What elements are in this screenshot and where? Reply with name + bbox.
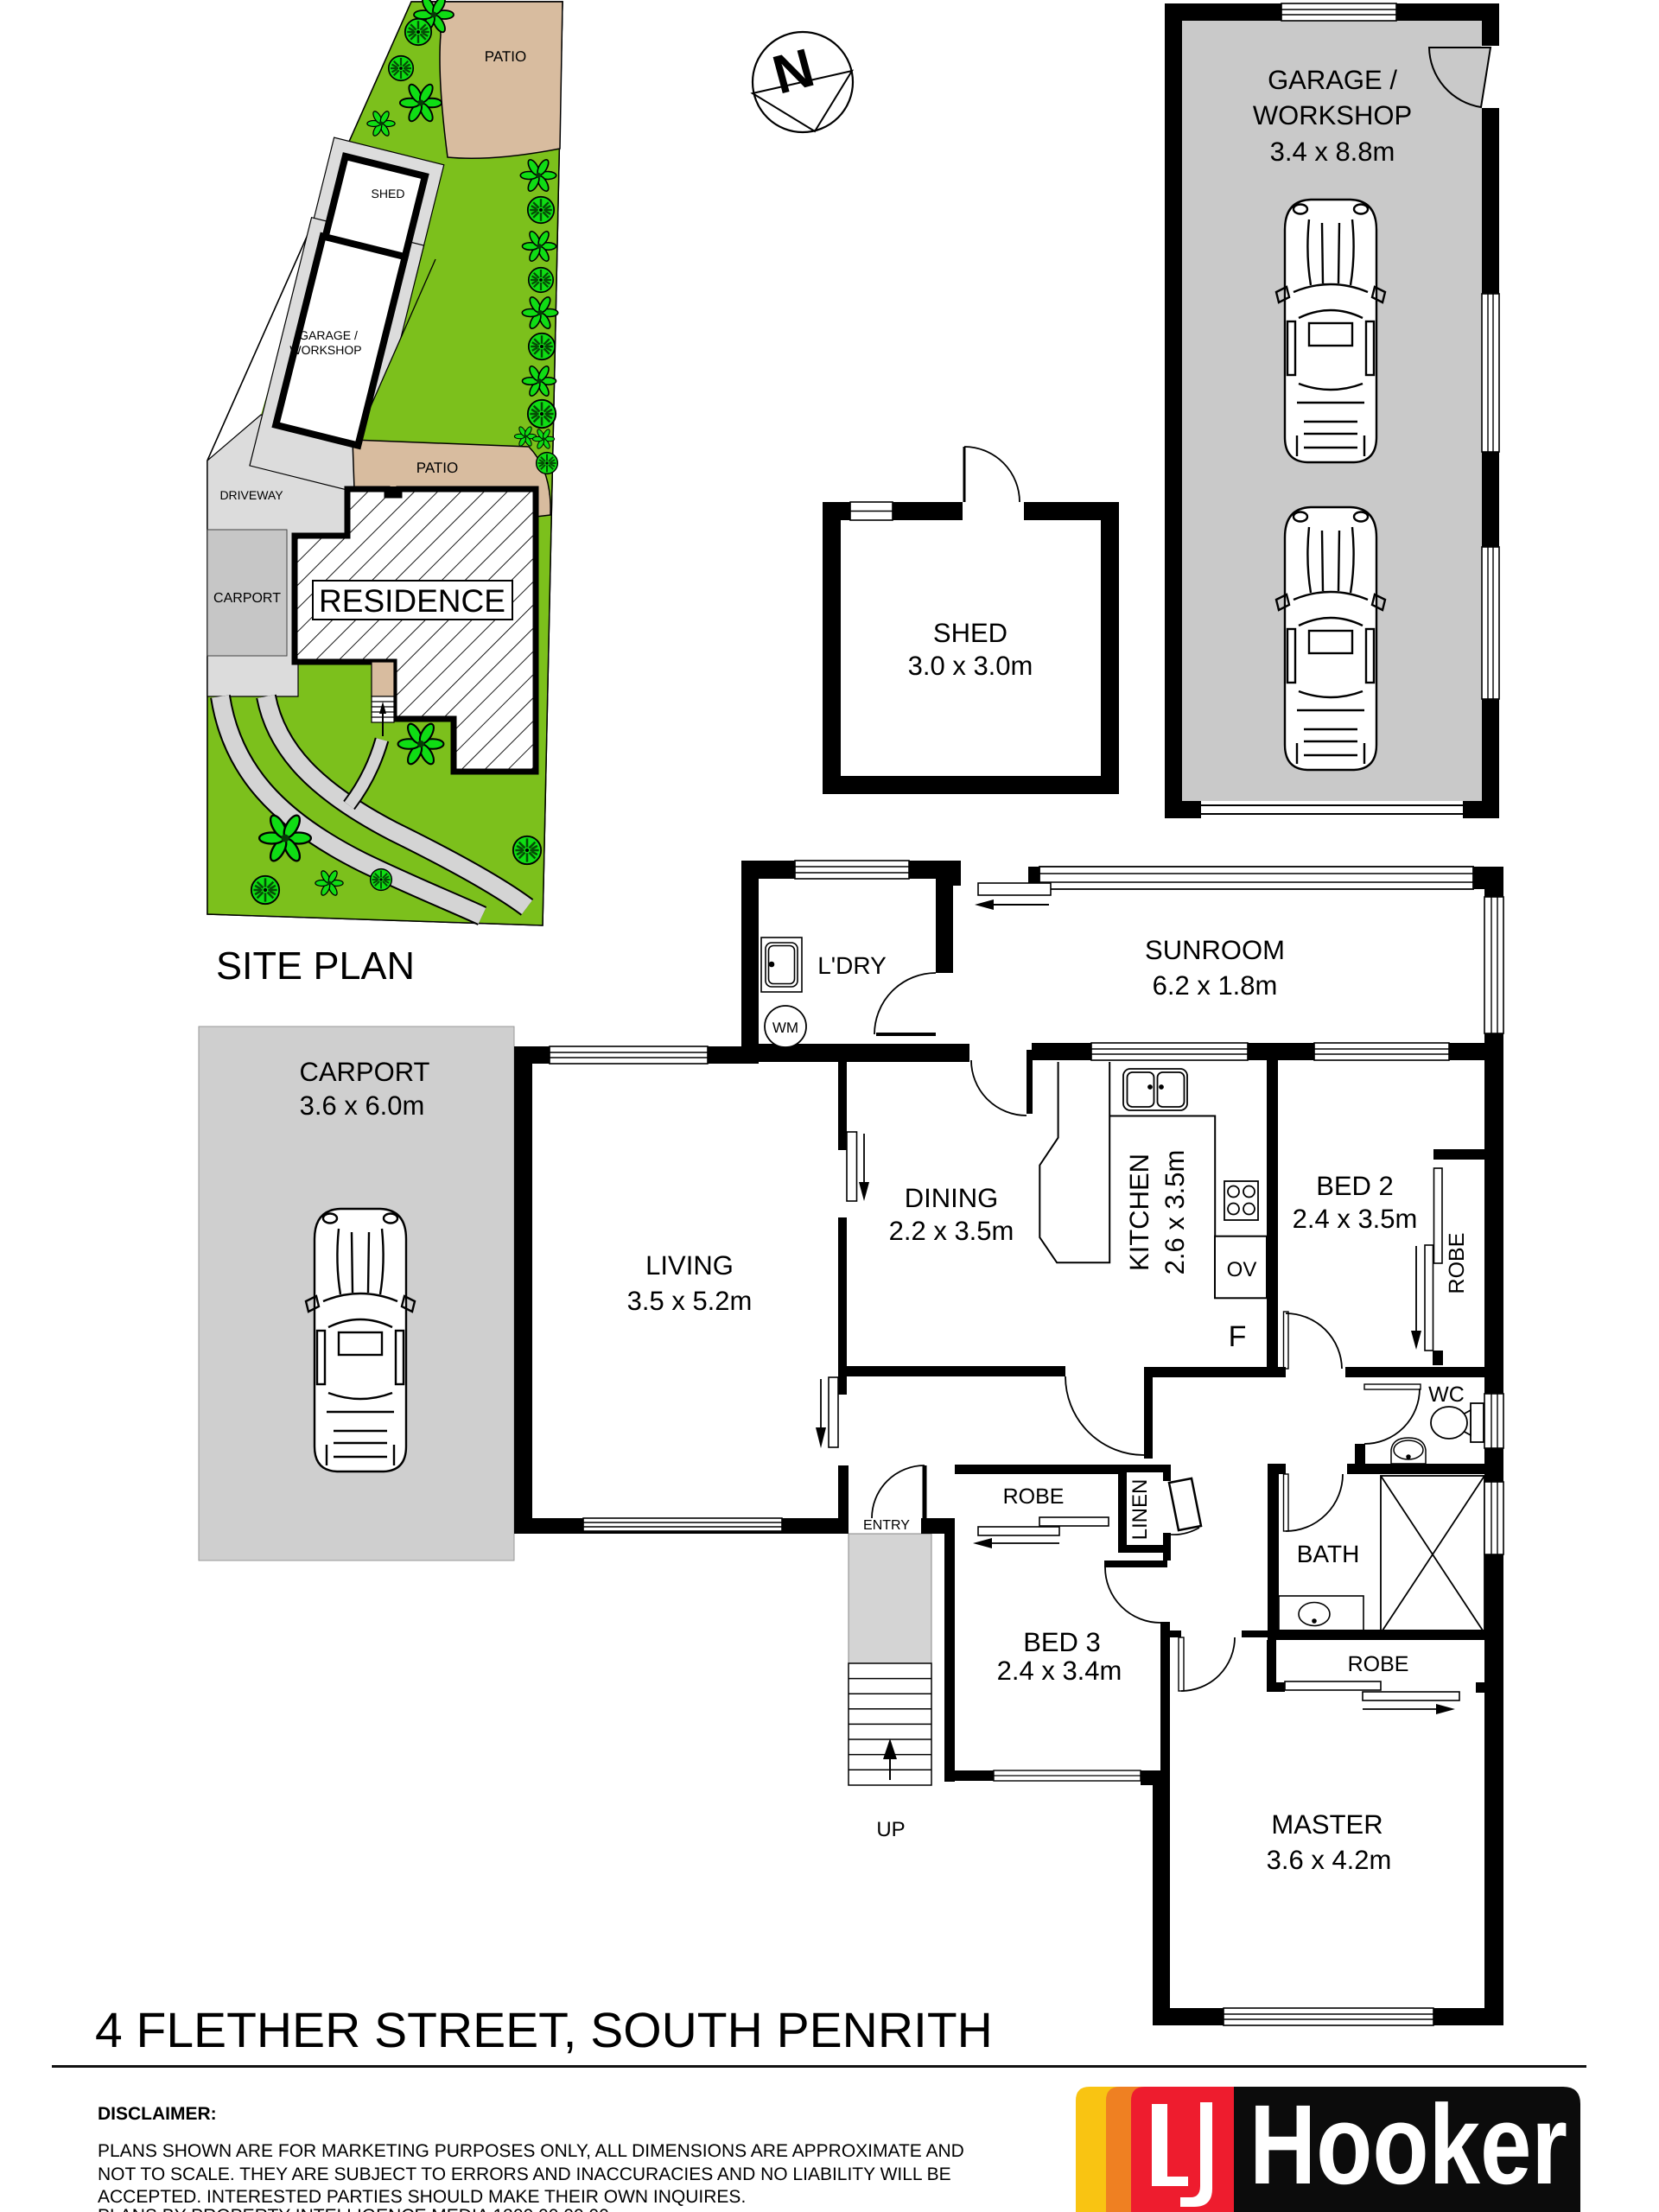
svg-text:SHED: SHED	[933, 618, 1007, 648]
svg-text:RESIDENCE: RESIDENCE	[319, 583, 505, 619]
svg-text:BATH: BATH	[1297, 1541, 1360, 1567]
svg-text:UP: UP	[876, 1818, 905, 1841]
svg-text:WC: WC	[1428, 1382, 1465, 1407]
svg-text:F: F	[1229, 1320, 1247, 1353]
svg-text:PATIO: PATIO	[416, 460, 459, 476]
svg-text:MASTER: MASTER	[1271, 1809, 1382, 1840]
svg-text:WORKSHOP: WORKSHOP	[289, 343, 361, 357]
svg-text:DRIVEWAY: DRIVEWAY	[219, 488, 283, 502]
svg-text:GARAGE /: GARAGE /	[299, 328, 358, 342]
svg-text:DINING: DINING	[905, 1183, 999, 1213]
svg-text:6.2 x 1.8m: 6.2 x 1.8m	[1153, 970, 1278, 1001]
svg-text:PATIO: PATIO	[485, 48, 527, 65]
svg-text:SHED: SHED	[372, 187, 405, 200]
svg-text:GARAGE /: GARAGE /	[1268, 65, 1397, 95]
svg-text:CARPORT: CARPORT	[299, 1057, 429, 1087]
svg-text:DISCLAIMER:: DISCLAIMER:	[98, 2104, 217, 2124]
svg-text:2.2 x 3.5m: 2.2 x 3.5m	[889, 1216, 1014, 1246]
svg-text:L'DRY: L'DRY	[817, 952, 887, 979]
svg-text:NOT TO SCALE. THEY ARE SUBJECT: NOT TO SCALE. THEY ARE SUBJECT TO ERRORS…	[98, 2164, 951, 2184]
svg-text:LIVING: LIVING	[645, 1250, 734, 1281]
svg-text:OV: OV	[1227, 1258, 1257, 1281]
svg-text:3.0 x 3.0m: 3.0 x 3.0m	[908, 651, 1033, 681]
svg-text:3.6 x 6.0m: 3.6 x 6.0m	[300, 1090, 425, 1121]
svg-text:SITE PLAN: SITE PLAN	[216, 944, 415, 988]
svg-text:ROBE: ROBE	[1003, 1484, 1065, 1509]
svg-text:SUNROOM: SUNROOM	[1145, 935, 1285, 965]
svg-text:CARPORT: CARPORT	[213, 591, 281, 606]
svg-text:ACCEPTED. INTERESTED PARTIES S: ACCEPTED. INTERESTED PARTIES SHOULD MAKE…	[98, 2187, 746, 2207]
svg-text:3.6 x 4.2m: 3.6 x 4.2m	[1267, 1845, 1392, 1875]
svg-text:PLANS BY PROPERTY INTELLIGENCE: PLANS BY PROPERTY INTELLIGENCE MEDIA 130…	[98, 2206, 609, 2212]
svg-text:WM: WM	[772, 1020, 798, 1036]
svg-text:2.4 x 3.5m: 2.4 x 3.5m	[1293, 1204, 1418, 1234]
svg-text:ENTRY: ENTRY	[863, 1518, 910, 1533]
svg-text:2.6 x 3.5m: 2.6 x 3.5m	[1160, 1150, 1190, 1275]
svg-text:Hooker: Hooker	[1249, 2081, 1567, 2208]
svg-text:2.4 x 3.4m: 2.4 x 3.4m	[997, 1656, 1122, 1686]
svg-text:3.4 x 8.8m: 3.4 x 8.8m	[1270, 137, 1395, 167]
svg-text:BED 2: BED 2	[1316, 1171, 1394, 1201]
svg-text:ROBE: ROBE	[1445, 1233, 1469, 1294]
svg-text:WORKSHOP: WORKSHOP	[1253, 100, 1412, 130]
svg-text:4 FLETHER STREET, SOUTH PENRIT: 4 FLETHER STREET, SOUTH PENRITH	[95, 2003, 993, 2058]
svg-text:KITCHEN: KITCHEN	[1124, 1154, 1154, 1271]
svg-text:PLANS SHOWN ARE FOR MARKETING: PLANS SHOWN ARE FOR MARKETING PURPOSES O…	[98, 2141, 964, 2161]
svg-text:3.5 x 5.2m: 3.5 x 5.2m	[627, 1286, 753, 1316]
svg-text:ROBE: ROBE	[1348, 1652, 1409, 1676]
svg-text:BED 3: BED 3	[1023, 1627, 1101, 1657]
svg-text:LINEN: LINEN	[1128, 1479, 1152, 1541]
